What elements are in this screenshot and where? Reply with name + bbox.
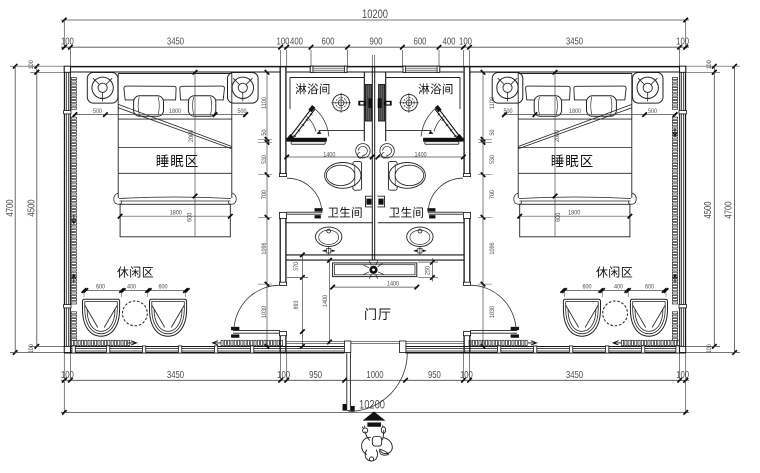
svg-text:睡眠区: 睡眠区: [156, 154, 200, 169]
svg-text:50: 50: [489, 129, 496, 135]
svg-text:100: 100: [277, 36, 290, 47]
svg-text:600: 600: [322, 36, 335, 47]
svg-text:100: 100: [706, 60, 713, 69]
svg-text:100: 100: [61, 370, 74, 381]
svg-text:100: 100: [277, 370, 290, 381]
svg-text:400: 400: [443, 36, 456, 47]
svg-text:500: 500: [503, 108, 512, 115]
svg-text:1400: 1400: [415, 151, 427, 158]
svg-text:100: 100: [28, 60, 35, 69]
svg-text:530: 530: [489, 155, 496, 164]
svg-text:睡眠区: 睡眠区: [551, 154, 595, 169]
svg-text:1400: 1400: [323, 151, 335, 158]
svg-text:600: 600: [555, 212, 562, 221]
svg-text:1096: 1096: [261, 242, 268, 254]
svg-text:3450: 3450: [566, 370, 583, 381]
svg-text:893: 893: [293, 300, 300, 309]
svg-text:1400: 1400: [322, 295, 329, 307]
svg-text:4700: 4700: [5, 199, 16, 216]
svg-text:卫生间: 卫生间: [327, 206, 362, 220]
svg-text:100: 100: [460, 370, 473, 381]
svg-text:1800: 1800: [569, 108, 581, 115]
svg-text:4700: 4700: [724, 201, 735, 218]
svg-text:600: 600: [187, 212, 194, 221]
svg-text:3450: 3450: [167, 36, 184, 47]
svg-text:休闲区: 休闲区: [596, 266, 633, 280]
svg-text:10200: 10200: [362, 9, 388, 21]
svg-text:530: 530: [261, 155, 268, 164]
svg-text:门厅: 门厅: [364, 307, 392, 322]
svg-text:250: 250: [424, 266, 431, 275]
svg-text:4500: 4500: [26, 199, 37, 216]
svg-text:100: 100: [61, 36, 74, 47]
svg-text:600: 600: [645, 284, 654, 291]
svg-text:50: 50: [261, 129, 268, 135]
svg-text:500: 500: [237, 108, 246, 115]
svg-text:400: 400: [290, 36, 303, 47]
svg-text:1030: 1030: [261, 306, 268, 318]
svg-text:100: 100: [706, 344, 713, 353]
svg-text:600: 600: [582, 284, 591, 291]
svg-text:卫生间: 卫生间: [389, 206, 424, 220]
svg-text:700: 700: [261, 190, 268, 199]
svg-text:100: 100: [28, 344, 35, 353]
svg-text:1800: 1800: [169, 108, 181, 115]
svg-text:淋浴间: 淋浴间: [418, 83, 453, 96]
svg-text:700: 700: [489, 190, 496, 199]
svg-text:400: 400: [614, 284, 623, 291]
svg-text:3450: 3450: [566, 36, 583, 47]
svg-text:1000: 1000: [366, 370, 383, 381]
svg-text:1400: 1400: [387, 280, 399, 287]
svg-text:600: 600: [158, 284, 167, 291]
svg-text:100: 100: [676, 370, 689, 381]
svg-text:950: 950: [309, 370, 322, 381]
svg-text:900: 900: [370, 36, 383, 47]
svg-text:1100: 1100: [489, 97, 496, 109]
svg-text:500: 500: [93, 108, 102, 115]
svg-text:950: 950: [428, 370, 441, 381]
svg-text:1030: 1030: [489, 306, 496, 318]
svg-text:1800: 1800: [170, 210, 182, 217]
svg-text:2000: 2000: [188, 130, 195, 142]
svg-text:600: 600: [96, 284, 105, 291]
svg-text:370: 370: [293, 262, 300, 271]
svg-text:3450: 3450: [167, 370, 184, 381]
svg-text:500: 500: [648, 108, 657, 115]
svg-text:淋浴间: 淋浴间: [295, 83, 330, 96]
svg-text:400: 400: [127, 284, 136, 291]
svg-text:1800: 1800: [568, 210, 580, 217]
svg-text:4500: 4500: [703, 201, 714, 218]
svg-text:2000: 2000: [554, 130, 561, 142]
svg-text:1100: 1100: [261, 97, 268, 109]
svg-text:100: 100: [459, 36, 472, 47]
svg-text:600: 600: [414, 36, 427, 47]
svg-text:100: 100: [676, 36, 689, 47]
svg-text:1096: 1096: [489, 242, 496, 254]
svg-text:休闲区: 休闲区: [117, 266, 154, 280]
